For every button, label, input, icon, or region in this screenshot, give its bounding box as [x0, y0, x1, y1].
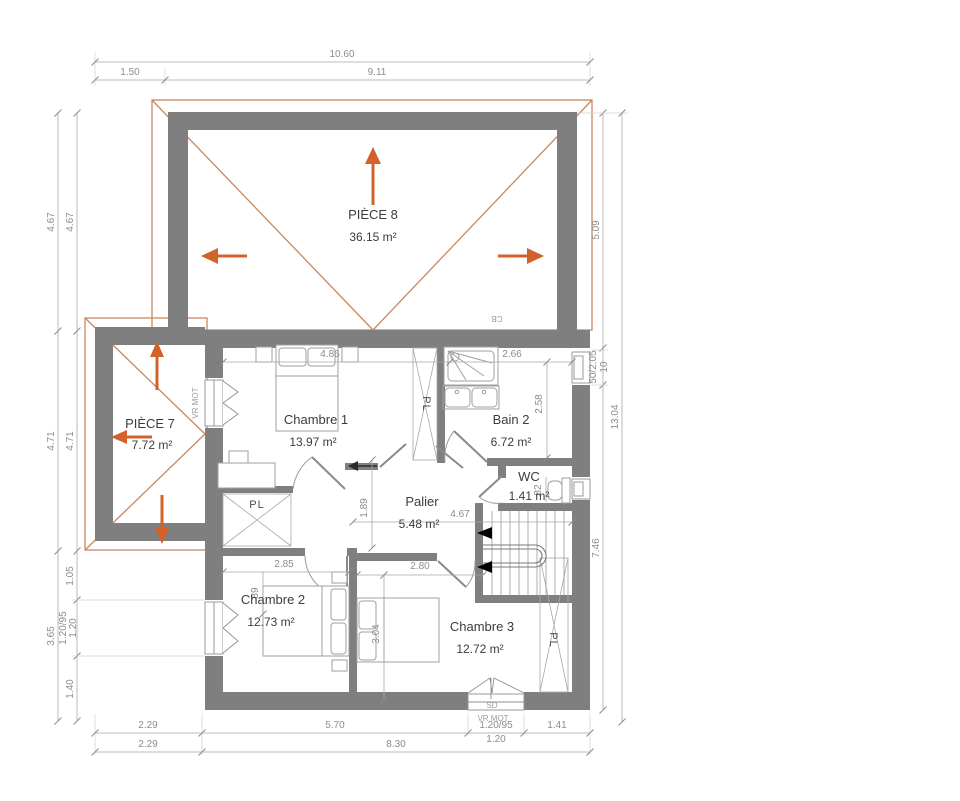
window-bain2-sash: [574, 356, 583, 379]
door-chambre1-arc: [293, 457, 312, 489]
label-bain2: Bain 2: [493, 412, 530, 427]
dim-bain-width: 2.66: [502, 349, 522, 360]
dims-left-window-ext: [71, 600, 205, 656]
area-chambre1: 13.97 m²: [289, 435, 336, 449]
dim-chambre3-width: 2.80: [410, 561, 430, 572]
toilet-bowl: [548, 481, 562, 500]
stair-treads: [492, 511, 564, 595]
dim-left-inner-e: 1.40: [65, 679, 76, 699]
dim-left-outer-c: 3.65: [46, 626, 57, 646]
dim-bottom-a: 2.29: [138, 720, 158, 731]
door-bain2-leaf: [454, 431, 487, 462]
dim-right-win: 50/2.05: [588, 350, 599, 384]
bed-chambre1-pillow-1: [279, 348, 306, 366]
piece8-wall-top: [168, 112, 577, 130]
wall-bain-bottom: [487, 458, 572, 466]
window-left-top-triangles: [223, 381, 238, 425]
sink-2: [472, 388, 497, 407]
dim-palier-width: 4.67: [450, 509, 470, 520]
dim-chambre1-width: 4.86: [320, 349, 340, 360]
dim-right-a: 5.09: [591, 220, 602, 240]
door-hub-leaf-left: [380, 444, 406, 467]
label-chambre1: Chambre 1: [284, 412, 348, 427]
arrow-left-piece7-head: [111, 430, 127, 444]
arrow-up-piece8-head: [365, 147, 381, 164]
main-wall-right-2: [572, 500, 590, 710]
label-chambre3: Chambre 3: [450, 619, 514, 634]
dim-bottom-c: 1.41: [547, 720, 567, 731]
dim-bottom-b: 5.70: [325, 720, 345, 731]
label-palier: Palier: [405, 494, 439, 509]
dim-top-a: 1.50: [120, 67, 140, 78]
door-chambre1-leaf: [312, 457, 345, 489]
label-pl-palier: PL: [249, 499, 264, 511]
area-palier: 5.48 m²: [399, 517, 440, 531]
dim-chambre2-width: 2.85: [274, 559, 294, 570]
area-piece7: 7.72 m²: [132, 438, 173, 452]
door-wc-leaf: [479, 476, 502, 497]
piece7-wall-left: [95, 327, 113, 541]
nightstand-c2-bottom: [332, 660, 347, 671]
sink-1: [445, 388, 470, 407]
dim-chambre3-height: 3.04: [371, 624, 382, 644]
label-cb: CB: [491, 314, 502, 323]
nightstand-left: [256, 347, 272, 362]
window-chambre2-triangles: [223, 603, 238, 653]
window-wc-sash: [574, 482, 583, 496]
dims-bottom: 2.29 5.70 1.20/95 1.20 1.41 2.29 8.30: [92, 713, 594, 756]
wall-wc-bottom: [498, 503, 572, 511]
main-wall-left-1: [205, 348, 223, 378]
dim-palier-height: 1.89: [359, 498, 370, 518]
dim-right-win2: 10: [599, 361, 610, 373]
piece8-wall-right: [557, 130, 577, 330]
floorplan-page: 10.60 1.50 9.11 4.67 4.71 3.65 4.67 4.71…: [0, 0, 960, 801]
dim-left-inner-c: 1.05: [65, 566, 76, 586]
area-chambre2: 12.73 m²: [247, 615, 294, 629]
dim-left-inner-b: 4.71: [65, 431, 76, 451]
arrow-left-piece8-head: [201, 248, 218, 264]
dim-left-outer-a: 4.67: [46, 212, 57, 232]
label-chambre2: Chambre 2: [241, 592, 305, 607]
wall-chambre3-top: [349, 553, 437, 561]
door-wc-arc: [479, 497, 502, 503]
dim-top-b: 9.11: [368, 67, 387, 78]
main-wall-right-1: [572, 385, 590, 477]
piece8-wall-left: [168, 130, 188, 330]
bed-chambre2-pillow-1: [331, 589, 346, 620]
door-chambre3-leaf: [438, 561, 466, 587]
label-pl-chambre1: PL: [420, 396, 432, 411]
main-wall-top: [205, 330, 590, 348]
piece7-wall-top: [95, 327, 205, 345]
label-vrmot-bottom: VR MOT: [477, 714, 508, 723]
wall-chambre2-top: [223, 548, 305, 556]
stairs: [477, 511, 564, 595]
area-wc: 1.41 m²: [509, 489, 550, 503]
bed-chambre2-pillow-2: [331, 623, 346, 654]
dims-top: 10.60 1.50 9.11: [92, 49, 594, 86]
shower: [444, 347, 498, 385]
dim-left-inner-a: 4.67: [65, 212, 76, 232]
door-chambre3-arc: [466, 561, 475, 587]
floorplan-drawing: 10.60 1.50 9.11 4.67 4.71 3.65 4.67 4.71…: [0, 0, 960, 801]
main-wall-bottom-2: [524, 692, 590, 710]
desk-chambre1: [218, 463, 275, 488]
dim-bain-height: 2.58: [534, 394, 545, 414]
dim-left-outer-b: 4.71: [46, 431, 57, 451]
dim-right-b: 7.46: [591, 538, 602, 558]
label-pl-chambre3: PL: [547, 632, 559, 647]
arrow-right-piece8-head: [527, 248, 544, 264]
label-piece7: PIÈCE 7: [125, 416, 175, 431]
dim-bottom-win2: 1.20: [486, 734, 506, 745]
stair-rail-outer: [483, 545, 546, 567]
wall-stairwell-left: [475, 503, 483, 603]
chair-chambre1: [229, 451, 248, 464]
piece7-wall-bottom: [95, 523, 205, 541]
dim-bottom2-a: 2.29: [138, 739, 158, 750]
area-piece8: 36.15 m²: [349, 230, 396, 244]
label-vrmot-left: VR MOT: [191, 387, 200, 418]
dim-left-inner-d2: 1.20: [68, 618, 79, 638]
nightstand-c2-top: [332, 572, 347, 583]
label-wc: WC: [518, 469, 540, 484]
label-piece8: PIÈCE 8: [348, 207, 398, 222]
wall-stairwell-bottom: [475, 595, 572, 603]
dim-right-total: 13.04: [610, 404, 621, 429]
area-chambre3: 12.72 m²: [456, 642, 503, 656]
dim-top-total: 10.60: [329, 49, 354, 60]
toilet-tank: [562, 478, 570, 503]
label-sd: SD: [486, 701, 497, 710]
dim-bottom2-b: 8.30: [386, 739, 406, 750]
nightstand-right: [342, 347, 358, 362]
main-wall-bottom-1: [205, 692, 468, 710]
area-bain2: 6.72 m²: [491, 435, 532, 449]
